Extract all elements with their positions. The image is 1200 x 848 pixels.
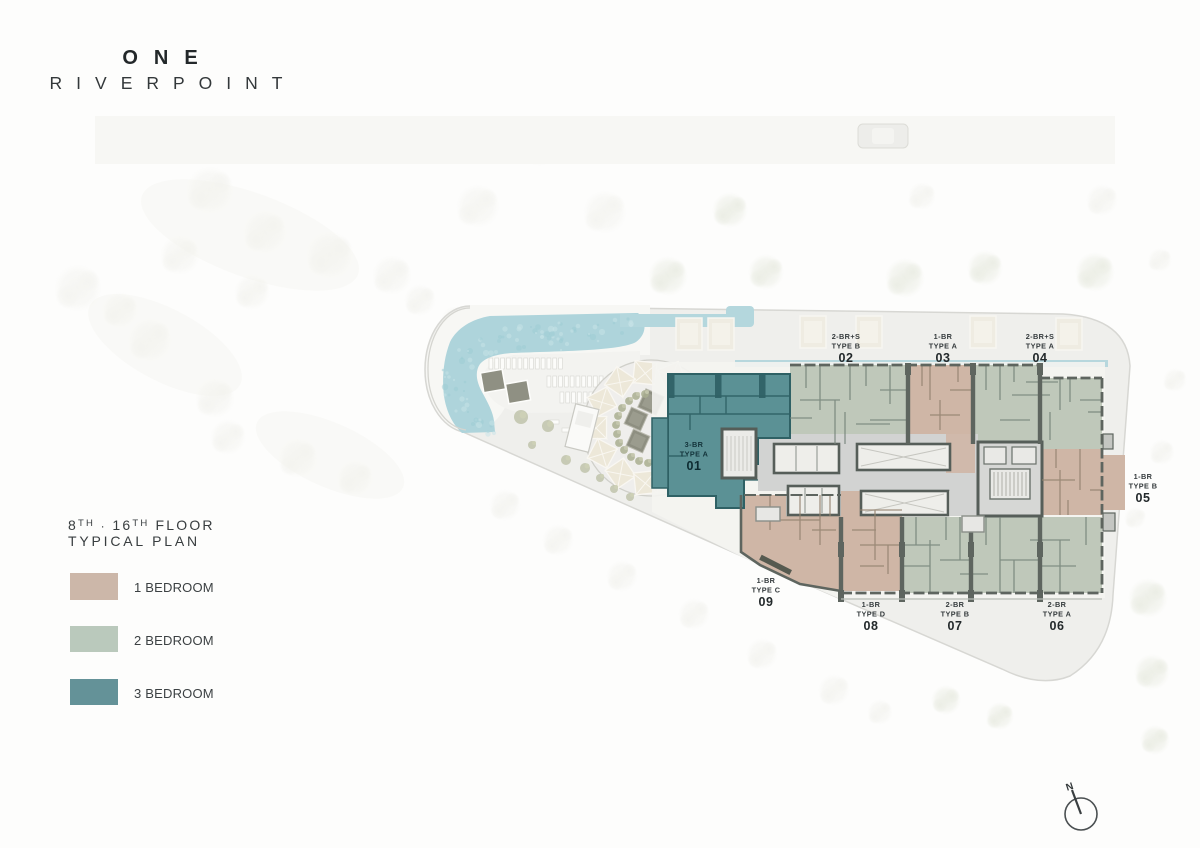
svg-text:08: 08 <box>864 619 879 633</box>
svg-text:2-BR: 2-BR <box>1048 600 1067 609</box>
svg-text:2-BR+S: 2-BR+S <box>832 332 861 341</box>
svg-text:TYPE A: TYPE A <box>929 342 958 351</box>
svg-text:TYPE B: TYPE B <box>1129 482 1158 491</box>
svg-text:04: 04 <box>1033 351 1048 365</box>
svg-text:TYPE A: TYPE A <box>1043 610 1072 619</box>
svg-text:01: 01 <box>687 459 702 473</box>
svg-text:1 BEDROOM: 1 BEDROOM <box>134 580 214 595</box>
svg-text:1-BR: 1-BR <box>757 576 776 585</box>
svg-text:ONE: ONE <box>122 47 213 69</box>
svg-text:3-BR: 3-BR <box>685 440 704 449</box>
svg-text:TYPE B: TYPE B <box>832 342 861 351</box>
svg-text:TYPE D: TYPE D <box>857 610 886 619</box>
svg-text:2-BR+S: 2-BR+S <box>1026 332 1055 341</box>
svg-text:TYPE A: TYPE A <box>680 450 709 459</box>
svg-text:03: 03 <box>936 351 951 365</box>
svg-text:02: 02 <box>839 351 854 365</box>
svg-text:3 BEDROOM: 3 BEDROOM <box>134 686 214 701</box>
svg-text:TYPE C: TYPE C <box>752 586 781 595</box>
svg-text:TYPICAL PLAN: TYPICAL PLAN <box>68 533 200 549</box>
svg-text:05: 05 <box>1136 491 1151 505</box>
svg-text:1-BR: 1-BR <box>934 332 953 341</box>
svg-text:07: 07 <box>948 619 963 633</box>
svg-text:2 BEDROOM: 2 BEDROOM <box>134 633 214 648</box>
svg-text:TYPE B: TYPE B <box>941 610 970 619</box>
svg-text:TYPE A: TYPE A <box>1026 342 1055 351</box>
svg-text:09: 09 <box>759 595 774 609</box>
svg-text:1-BR: 1-BR <box>1134 472 1153 481</box>
svg-text:06: 06 <box>1050 619 1065 633</box>
svg-text:RIVERPOINT: RIVERPOINT <box>50 73 297 93</box>
svg-text:2-BR: 2-BR <box>946 600 965 609</box>
svg-text:1-BR: 1-BR <box>862 600 881 609</box>
